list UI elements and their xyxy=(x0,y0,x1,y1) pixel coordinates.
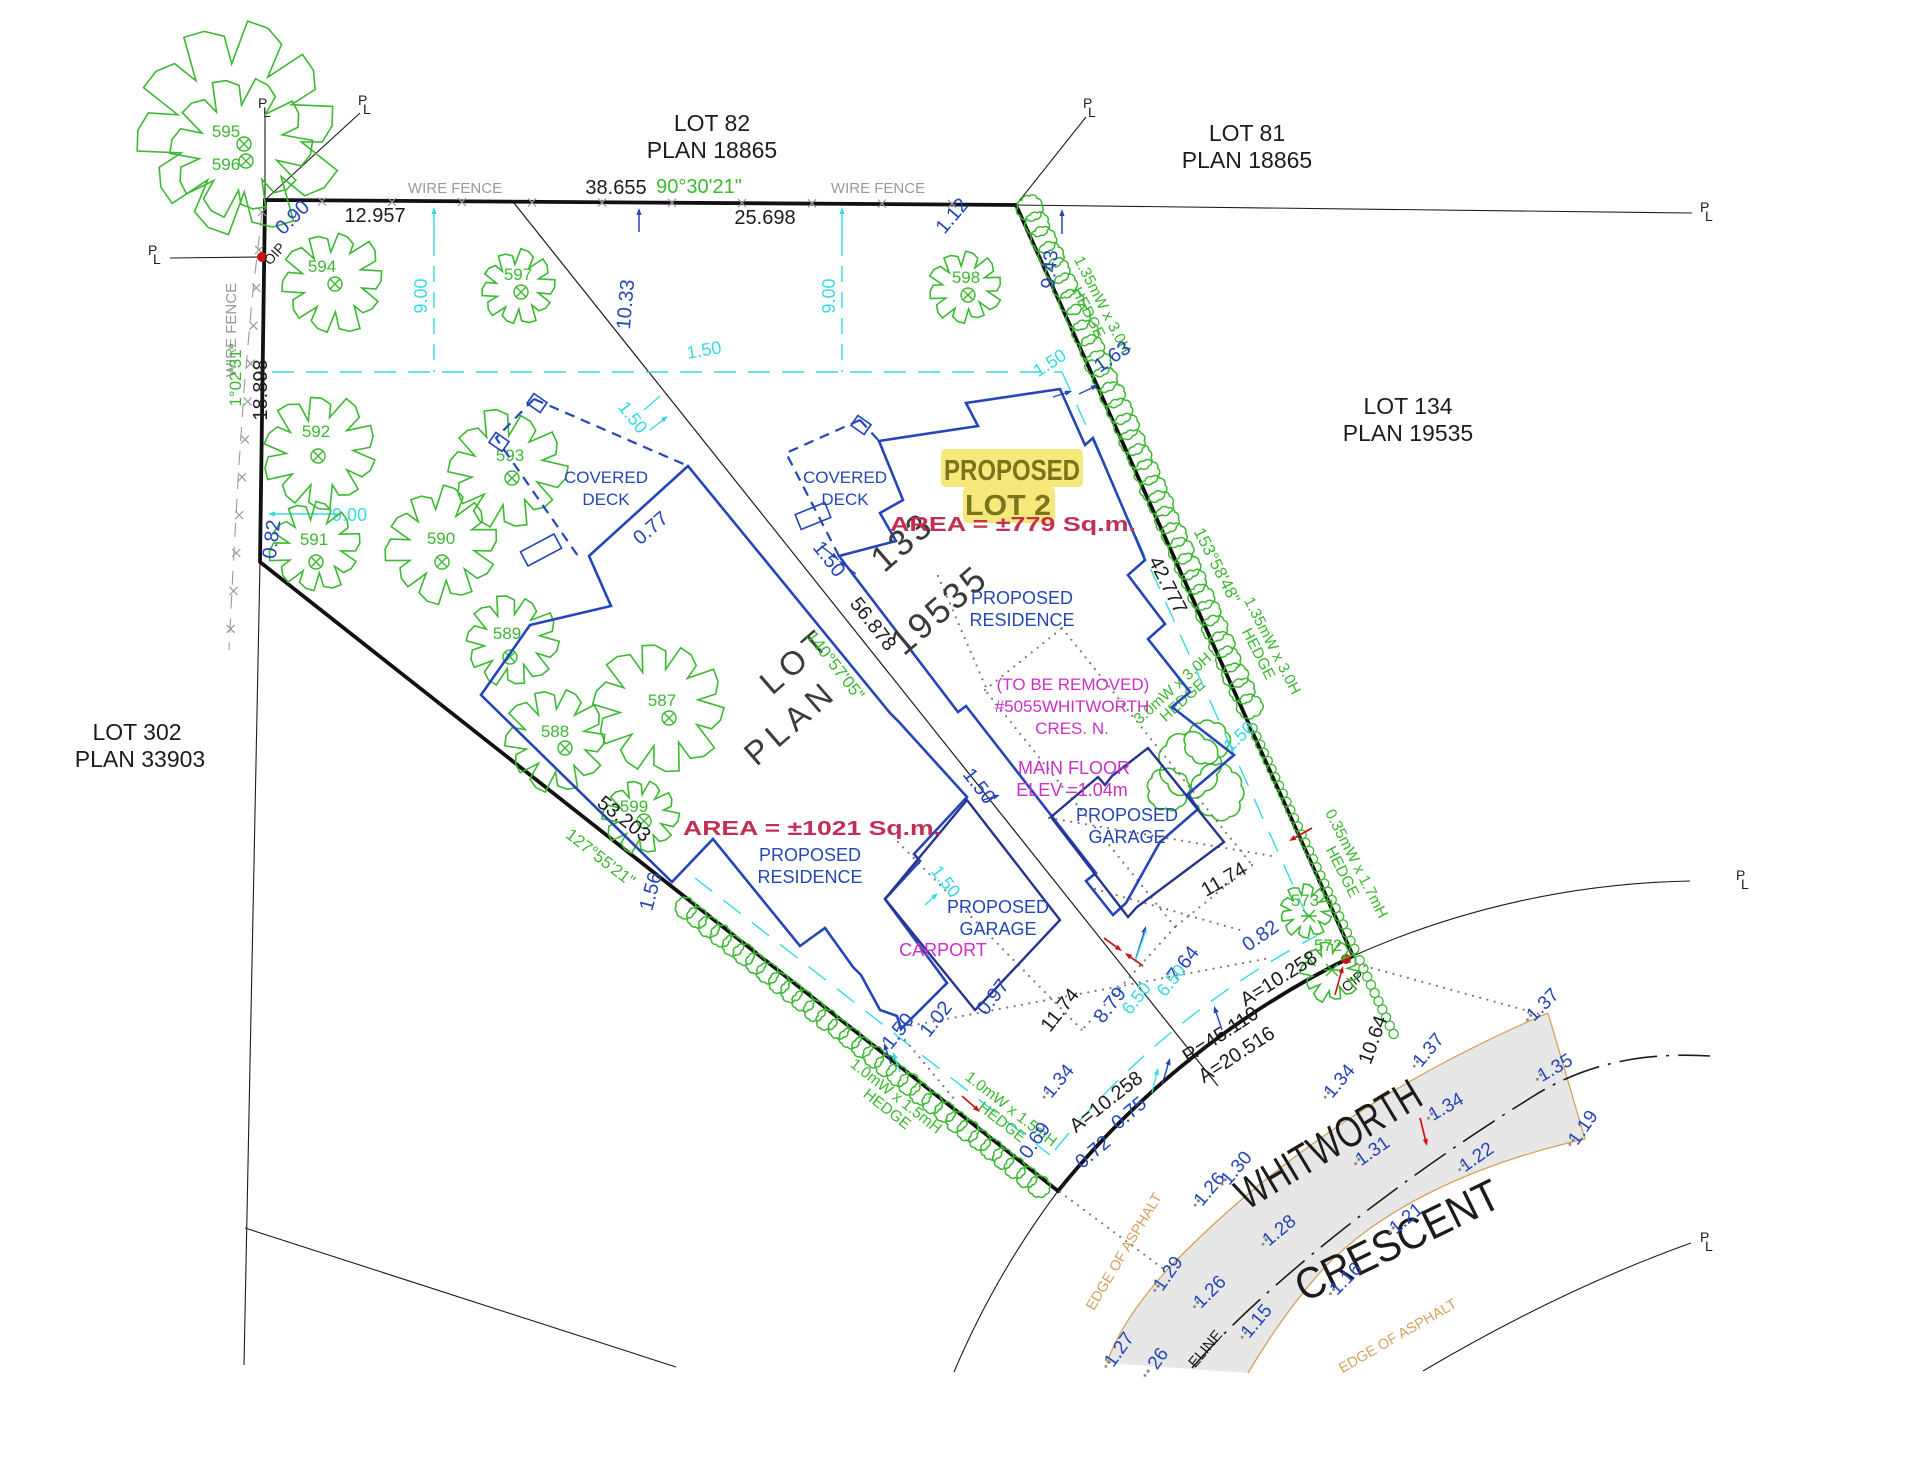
svg-text:WIRE FENCE: WIRE FENCE xyxy=(408,180,502,197)
svg-text:592: 592 xyxy=(302,422,330,441)
svg-text:596: 596 xyxy=(212,155,240,174)
svg-text:(TO BE REMOVED): (TO BE REMOVED) xyxy=(997,675,1150,694)
svg-text:9.00: 9.00 xyxy=(411,278,431,313)
svg-text:25.698: 25.698 xyxy=(734,207,795,229)
svg-text:RESIDENCE: RESIDENCE xyxy=(969,610,1074,630)
svg-text:L: L xyxy=(153,251,161,267)
svg-text:PLAN 18865: PLAN 18865 xyxy=(647,137,777,163)
svg-text:CARPORT: CARPORT xyxy=(899,940,987,960)
svg-text:#5055WHITWORTH: #5055WHITWORTH xyxy=(995,697,1150,716)
svg-text:591: 591 xyxy=(300,530,328,549)
svg-text:590: 590 xyxy=(427,529,455,548)
svg-text:90°30'21": 90°30'21" xyxy=(656,176,742,198)
svg-text:WIRE FENCE: WIRE FENCE xyxy=(831,180,925,197)
svg-text:LOT 134: LOT 134 xyxy=(1363,393,1452,419)
svg-text:LOT 302: LOT 302 xyxy=(92,719,181,745)
svg-text:38.655: 38.655 xyxy=(585,177,646,199)
svg-text:COVERED: COVERED xyxy=(803,468,887,487)
svg-text:PLAN 19535: PLAN 19535 xyxy=(1343,420,1473,446)
svg-text:PROPOSED: PROPOSED xyxy=(944,455,1080,487)
svg-text:GARAGE: GARAGE xyxy=(1088,827,1165,847)
svg-text:CRES. N.: CRES. N. xyxy=(1035,719,1109,738)
svg-text:598: 598 xyxy=(952,268,980,287)
svg-text:PROPOSED: PROPOSED xyxy=(971,588,1073,608)
svg-text:PROPOSED: PROPOSED xyxy=(759,845,861,865)
svg-text:10.33: 10.33 xyxy=(613,279,639,331)
svg-text:573: 573 xyxy=(1291,891,1319,910)
svg-text:595: 595 xyxy=(212,122,240,141)
svg-text:PLAN 18865: PLAN 18865 xyxy=(1182,147,1312,173)
svg-text:9.43: 9.43 xyxy=(1037,249,1062,290)
svg-text:589: 589 xyxy=(493,624,521,643)
svg-text:1°02'31": 1°02'31" xyxy=(226,343,245,406)
svg-text:AREA = ±779 Sq.m.: AREA = ±779 Sq.m. xyxy=(890,514,1136,536)
svg-text:PROPOSED: PROPOSED xyxy=(1076,805,1178,825)
svg-text:PROPOSED: PROPOSED xyxy=(947,897,1049,917)
svg-text:L: L xyxy=(1088,104,1096,120)
svg-text:RESIDENCE: RESIDENCE xyxy=(757,867,862,887)
svg-text:LOT 81: LOT 81 xyxy=(1209,120,1285,146)
svg-text:COVERED: COVERED xyxy=(564,468,648,487)
svg-text:594: 594 xyxy=(308,257,336,276)
svg-text:588: 588 xyxy=(541,722,569,741)
svg-text:DECK: DECK xyxy=(821,490,869,509)
svg-text:ELEV =1.04m: ELEV =1.04m xyxy=(1016,780,1128,800)
svg-text:587: 587 xyxy=(648,691,676,710)
svg-text:597: 597 xyxy=(504,265,532,284)
svg-text:0.82: 0.82 xyxy=(259,519,286,560)
svg-text:LOT 82: LOT 82 xyxy=(674,110,750,136)
svg-text:572: 572 xyxy=(1314,936,1342,955)
svg-text:PLAN 33903: PLAN 33903 xyxy=(75,746,205,772)
svg-text:DECK: DECK xyxy=(582,490,630,509)
svg-text:L: L xyxy=(1705,208,1713,224)
svg-text:9.00: 9.00 xyxy=(819,278,839,313)
svg-text:18.898: 18.898 xyxy=(250,359,272,420)
svg-text:L: L xyxy=(363,101,371,117)
svg-text:MAIN FLOOR: MAIN FLOOR xyxy=(1018,758,1130,778)
svg-text:L: L xyxy=(1705,1238,1713,1254)
svg-text:593: 593 xyxy=(496,446,524,465)
svg-text:GARAGE: GARAGE xyxy=(959,919,1036,939)
svg-text:AREA = ±1021 Sq.m.: AREA = ±1021 Sq.m. xyxy=(683,818,941,840)
svg-text:12.957: 12.957 xyxy=(344,205,405,227)
svg-text:L: L xyxy=(1741,876,1749,892)
